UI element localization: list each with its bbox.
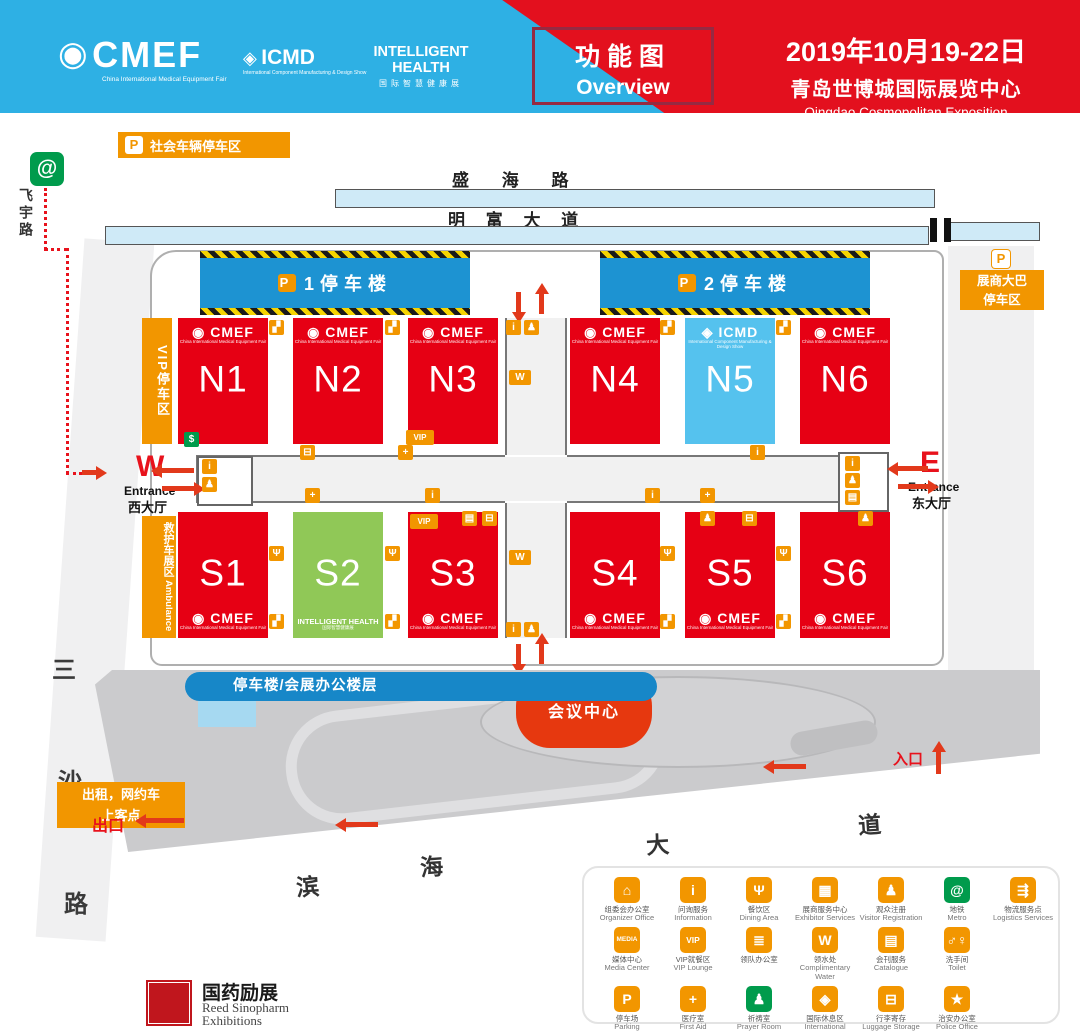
office-annex-block: [198, 701, 256, 727]
cmef-brand-logo: ◉ CMEFChina International Medical Equipm…: [408, 611, 498, 631]
legend-item-international-lounge: ◈国际休息区International Lounge: [792, 986, 858, 1031]
parking-icon: P: [614, 986, 640, 1012]
cmef-brand-logo: ◉ CMEFChina International Medical Equipm…: [178, 325, 268, 345]
info-icon: i: [750, 445, 765, 460]
conference-center-label: 会议中心: [548, 698, 620, 722]
visitor-registration-icon: ♟: [878, 877, 904, 903]
legend-item-information: i问询服务Information: [660, 877, 726, 923]
vip-icon: VIP: [406, 430, 434, 445]
legend-item-metro: @地铁Metro: [924, 877, 990, 923]
logistics-services-icon: ⇶: [1010, 877, 1036, 903]
legend-item-luggage-storage: ⊟行李寄存Luggage Storage: [858, 986, 924, 1031]
hall-S2: INTELLIGENT HEALTH国际智慧健康展S2: [293, 512, 383, 638]
atm-icon: $: [184, 432, 199, 447]
road-mingfu: [105, 226, 929, 245]
legend-item-visitor-registration: ♟观众注册Visitor Registration: [858, 877, 924, 923]
cmef-logo: ◉ CMEF China International Medical Equip…: [58, 34, 227, 83]
east-entrance-label-cn: 东大厅: [912, 493, 951, 512]
hall-S4: ◉ CMEFChina International Medical Equipm…: [570, 512, 660, 638]
hall-label: S3: [408, 552, 498, 594]
hall-S6: ◉ CMEFChina International Medical Equipm…: [800, 512, 890, 638]
entry-gate-label: 入口: [893, 748, 923, 769]
overview-title-box: 功能图 Overview: [532, 27, 714, 105]
legend-label-en: VIP Lounge: [660, 964, 726, 973]
information-icon: i: [680, 877, 706, 903]
ambulance-label-en: Ambulance: [163, 580, 174, 631]
cmef-emblem-icon: ◉: [58, 35, 88, 73]
legend-item-first-aid: +医疗室First Aid: [660, 986, 726, 1031]
info-icon: i: [845, 456, 860, 471]
hall-label: N4: [570, 358, 660, 400]
legend-item-parking: P停车场Parking: [594, 986, 660, 1031]
hall-label: N1: [178, 358, 268, 400]
legend-label-en: Complimentary Water: [792, 964, 858, 981]
icmd-logo-text: ICMD: [261, 46, 315, 69]
legend-label-en: Luggage Storage: [858, 1023, 924, 1031]
east-entrance-letter: E: [920, 446, 940, 480]
hall-S3: ◉ CMEFChina International Medical Equipm…: [408, 512, 498, 638]
cmef-brand-logo: ◉ CMEFChina International Medical Equipm…: [570, 325, 660, 345]
visitor-icon: ♟: [202, 477, 217, 492]
office-tower-pill: 停车楼/会展办公楼层: [185, 672, 657, 701]
legend-item-exhibitor-services: ▦展商服务中心Exhibitor Services: [792, 877, 858, 923]
legend-item-catalogue: ▤会刊服务Catalogue: [858, 927, 924, 982]
corridor-wall: [565, 503, 567, 638]
legend-item-organizer-office: ⌂组委会办公室Organizer Office: [594, 877, 660, 923]
visitor-icon: ♟: [858, 511, 873, 526]
legend-item-leader-office: ≣领队办公室: [726, 927, 792, 982]
escalator-icon: ▞: [660, 320, 675, 335]
ih-brand-logo: INTELLIGENT HEALTH国际智慧健康展: [293, 618, 383, 631]
info-icon: i: [506, 320, 521, 335]
event-date: 2019年10月19-22日: [760, 30, 1052, 69]
cmef-brand-logo: ◉ CMEFChina International Medical Equipm…: [800, 611, 890, 631]
parking-tower-1: P 1停车楼: [200, 258, 470, 308]
corridor-in-arrow: [516, 292, 521, 312]
bus-parking-line1: 展商大巴: [960, 272, 1044, 291]
legend-label-en: Exhibitor Services: [792, 914, 858, 923]
road-binhai-char: 滨: [295, 867, 320, 903]
central-corridor: [198, 457, 883, 501]
parking-tower-1-label: 1停车楼: [304, 270, 392, 296]
catalogue-icon: ▤: [878, 927, 904, 953]
cmef-brand-logo: ◉ CMEFChina International Medical Equipm…: [685, 611, 775, 631]
vip-lounge-icon: VIP: [680, 927, 706, 953]
parking-tower-2-label: 2停车楼: [704, 270, 792, 296]
escalator-icon: ▞: [660, 614, 675, 629]
legend-label-cn: 领队办公室: [726, 955, 792, 964]
luggage-icon: ⊟: [742, 511, 757, 526]
escalator-icon: ▞: [269, 320, 284, 335]
media-center-icon: MEDIA: [614, 927, 640, 953]
event-info: 2019年10月19-22日 青岛世博城国际展览中心 Qingdao Cosmo…: [760, 30, 1052, 120]
social-parking-text: 社会车辆停车区: [150, 136, 241, 155]
corridor-wall: [505, 318, 507, 455]
visitor-icon: ♟: [524, 320, 539, 335]
legend-label-en: Prayer Room: [726, 1023, 792, 1031]
corridor-out-arrow: [539, 644, 544, 664]
south-corridor: [507, 503, 565, 638]
parking-icon: P: [992, 250, 1010, 268]
road-binhai-char: 道: [857, 805, 882, 841]
legend-item-vip-lounge: VIPVIP就餐区VIP Lounge: [660, 927, 726, 982]
escalator-icon: ▞: [385, 320, 400, 335]
legend-label-en: Visitor Registration: [858, 914, 924, 923]
prayer-room-icon: ♟: [746, 986, 772, 1012]
legend-item-dining-area: Ψ餐饮区Dining Area: [726, 877, 792, 923]
bus-parking-label: 展商大巴 停车区: [960, 270, 1044, 310]
venue-name-cn: 青岛世博城国际展览中心: [760, 73, 1052, 102]
first-aid-icon: +: [700, 488, 715, 503]
metro-route-dotted-line: [66, 248, 69, 474]
visitor-icon: ♟: [524, 622, 539, 637]
hall-N5: ◈ ICMDInternational Component Manufactur…: [685, 318, 775, 444]
office-tower-label: 停车楼/会展办公楼层: [233, 678, 378, 694]
icmd-emblem-icon: ◈: [243, 48, 257, 68]
social-parking-label: P 社会车辆停车区: [118, 132, 290, 158]
legend-label-en: Parking: [594, 1023, 660, 1031]
dining-icon: Ψ: [269, 546, 284, 561]
footer-org-name-en2: Exhibitions: [202, 1013, 262, 1029]
first-aid-icon: +: [305, 488, 320, 503]
legend-label-en: Organizer Office: [594, 914, 660, 923]
legend-label-en: Information: [660, 914, 726, 923]
bus-parking-line2: 停车区: [960, 291, 1044, 310]
legend-item-logistics-services: ⇶物流服务点Logistics Services: [990, 877, 1056, 923]
overview-title-en: Overview: [535, 76, 711, 100]
info-icon: i: [506, 622, 521, 637]
corridor-wall: [567, 455, 883, 457]
binhai-road-arrow: [346, 822, 378, 827]
hall-label: N3: [408, 358, 498, 400]
parking-icon: P: [125, 136, 143, 154]
taxi-pickup-line1: 出租，网约车: [57, 785, 185, 806]
police-office-icon: ★: [944, 986, 970, 1012]
escalator-icon: ▞: [385, 614, 400, 629]
legend-item-toilet: ♂♀洗手间Toilet: [924, 927, 990, 982]
road-sansha-char: 路: [64, 884, 88, 919]
escalator-icon: ▞: [269, 614, 284, 629]
legend-item-media-center: MEDIA媒体中心Media Center: [594, 927, 660, 982]
parking-icon: P: [678, 274, 696, 292]
toilet-icon: ♂♀: [944, 927, 970, 953]
inner-road-arrow: [774, 764, 806, 769]
water-icon: W: [509, 550, 531, 565]
road-binhai-char: 大: [645, 825, 670, 861]
legend-row: P停车场Parking+医疗室First Aid♟祈祷室Prayer Room◈…: [594, 986, 1058, 1031]
ih-logo-text: INTELLIGENT HEALTH: [346, 44, 496, 76]
west-entrance-arrow: [162, 468, 194, 473]
bus-parking-p: P: [992, 250, 1010, 268]
dining-icon: Ψ: [385, 546, 400, 561]
international-lounge-icon: ◈: [812, 986, 838, 1012]
visitor-icon: ♟: [845, 473, 860, 488]
road-gate-mark: [930, 218, 937, 242]
exhibitor-services-icon: ▦: [812, 877, 838, 903]
cmef-logo-text: CMEF: [92, 34, 202, 75]
hall-N2: ◉ CMEFChina International Medical Equipm…: [293, 318, 383, 444]
legend-label-en: Media Center: [594, 964, 660, 973]
road-feiyu-label: 飞宇路: [16, 188, 36, 239]
road-sansha-char: 三: [52, 650, 76, 685]
cmef-brand-logo: ◉ CMEFChina International Medical Equipm…: [178, 611, 268, 631]
dining-area-icon: Ψ: [746, 877, 772, 903]
road-gate-mark: [944, 218, 951, 242]
overview-title-cn: 功能图: [535, 37, 711, 73]
hall-label: N5: [685, 358, 775, 400]
hall-S5: ◉ CMEFChina International Medical Equipm…: [685, 512, 775, 638]
legend-item-police-office: ★治安办公室Police Office: [924, 986, 990, 1031]
road-mingfu-east-segment: [950, 222, 1040, 241]
reed-sinopharm-logo-icon: [146, 980, 192, 1026]
intelligent-health-logo: INTELLIGENT HEALTH 国际智慧健康展: [346, 44, 496, 89]
luggage-storage-icon: ⊟: [878, 986, 904, 1012]
service-icon: ▤: [462, 511, 477, 526]
legend-label-en: Toilet: [924, 964, 990, 973]
legend-label-en: Police Office: [924, 1023, 990, 1031]
corridor-out-arrow: [539, 294, 544, 314]
corridor-wall: [565, 318, 567, 455]
complimentary-water-icon: W: [812, 927, 838, 953]
escalator-icon: ▞: [776, 614, 791, 629]
dining-icon: Ψ: [660, 546, 675, 561]
metro-route-arrow: [82, 470, 96, 475]
venue-name-en: Qingdao Cosmopolitan Exposition: [760, 105, 1052, 120]
legend-label-en: International Lounge: [792, 1023, 858, 1031]
metro-route-dotted-line: [44, 188, 47, 250]
legend-label-en: Catalogue: [858, 964, 924, 973]
info-icon: i: [202, 459, 217, 474]
dining-icon: Ψ: [776, 546, 791, 561]
east-entrance-arrow: [898, 484, 928, 489]
road-shenghai: [335, 189, 935, 208]
cmef-brand-logo: ◉ CMEFChina International Medical Equipm…: [293, 325, 383, 345]
west-entrance-label-cn: 西大厅: [128, 497, 167, 516]
hall-label: S5: [685, 552, 775, 594]
ih-logo-subtext: 国际智慧健康展: [346, 78, 496, 89]
metro-icon: @: [30, 152, 64, 186]
hall-S1: ◉ CMEFChina International Medical Equipm…: [178, 512, 268, 638]
corridor-in-arrow: [516, 644, 521, 664]
legend-label-en: Dining Area: [726, 914, 792, 923]
luggage-icon: ⊟: [482, 511, 497, 526]
legend-row: MEDIA媒体中心Media CenterVIPVIP就餐区VIP Lounge…: [594, 927, 1058, 982]
hall-N1: ◉ CMEFChina International Medical Equipm…: [178, 318, 268, 444]
visitor-icon: ♟: [700, 511, 715, 526]
service-icon: ▤: [845, 490, 860, 505]
hall-label: S6: [800, 552, 890, 594]
ambulance-label-cn: 救护车展区: [162, 522, 174, 577]
info-icon: i: [645, 488, 660, 503]
cmef-logo-subtext: China International Medical Equipment Fa…: [102, 76, 227, 83]
east-entrance-arrow: [898, 466, 928, 471]
leader-office-icon: ≣: [746, 927, 772, 953]
corridor-wall: [567, 501, 883, 503]
venue-overview-map: ◉ CMEF China International Medical Equip…: [0, 0, 1080, 1031]
legend-item-complimentary-water: W领水处Complimentary Water: [792, 927, 858, 982]
hall-label: N6: [800, 358, 890, 400]
legend-row: ⌂组委会办公室Organizer Officei问询服务InformationΨ…: [594, 877, 1058, 923]
first-aid-icon: +: [680, 986, 706, 1012]
escalator-icon: ▞: [776, 320, 791, 335]
hall-label: S2: [293, 552, 383, 594]
exit-arrow: [146, 818, 184, 823]
ambulance-strip: 救护车展区 Ambulance: [142, 516, 176, 638]
info-icon: i: [425, 488, 440, 503]
parking-tower-2: P 2停车楼: [600, 258, 870, 308]
metro-route-dotted-line: [44, 248, 68, 251]
vip-icon: VIP: [410, 514, 438, 529]
cmef-brand-logo: ◉ CMEFChina International Medical Equipm…: [570, 611, 660, 631]
organizer-office-icon: ⌂: [614, 877, 640, 903]
hall-N4: ◉ CMEFChina International Medical Equipm…: [570, 318, 660, 444]
legend-label-en: Metro: [924, 914, 990, 923]
exit-gate-label: 出口: [92, 812, 124, 836]
icmd-brand-logo: ◈ ICMDInternational Component Manufactur…: [685, 325, 775, 350]
entry-arrow: [936, 752, 941, 774]
hall-N6: ◉ CMEFChina International Medical Equipm…: [800, 318, 890, 444]
hall-label: N2: [293, 358, 383, 400]
metro-route-dotted-line: [66, 472, 82, 475]
road-binhai-char: 海: [419, 847, 444, 883]
road-shenghai-label: 盛 海 路: [452, 166, 582, 191]
legend-label-en: Logistics Services: [990, 914, 1056, 923]
luggage-icon: ⊟: [300, 445, 315, 460]
north-corridor: [507, 318, 565, 455]
hall-N3: ◉ CMEFChina International Medical Equipm…: [408, 318, 498, 444]
vip-parking-strip: VIP停车区: [142, 318, 172, 444]
metro-icon: @: [944, 877, 970, 903]
corridor-wall: [505, 503, 507, 638]
header-banner: ◉ CMEF China International Medical Equip…: [0, 0, 1080, 113]
water-icon: W: [509, 370, 531, 385]
parking-icon: P: [278, 274, 296, 292]
cmef-brand-logo: ◉ CMEFChina International Medical Equipm…: [408, 325, 498, 345]
first-aid-icon: +: [398, 445, 413, 460]
legend-box: ⌂组委会办公室Organizer Officei问询服务InformationΨ…: [582, 866, 1060, 1024]
legend-item-prayer-room: ♟祈祷室Prayer Room: [726, 986, 792, 1031]
west-entrance-arrow: [162, 486, 194, 491]
hall-label: S4: [570, 552, 660, 594]
hall-label: S1: [178, 552, 268, 594]
cmef-brand-logo: ◉ CMEFChina International Medical Equipm…: [800, 325, 890, 345]
legend-label-en: First Aid: [660, 1023, 726, 1031]
